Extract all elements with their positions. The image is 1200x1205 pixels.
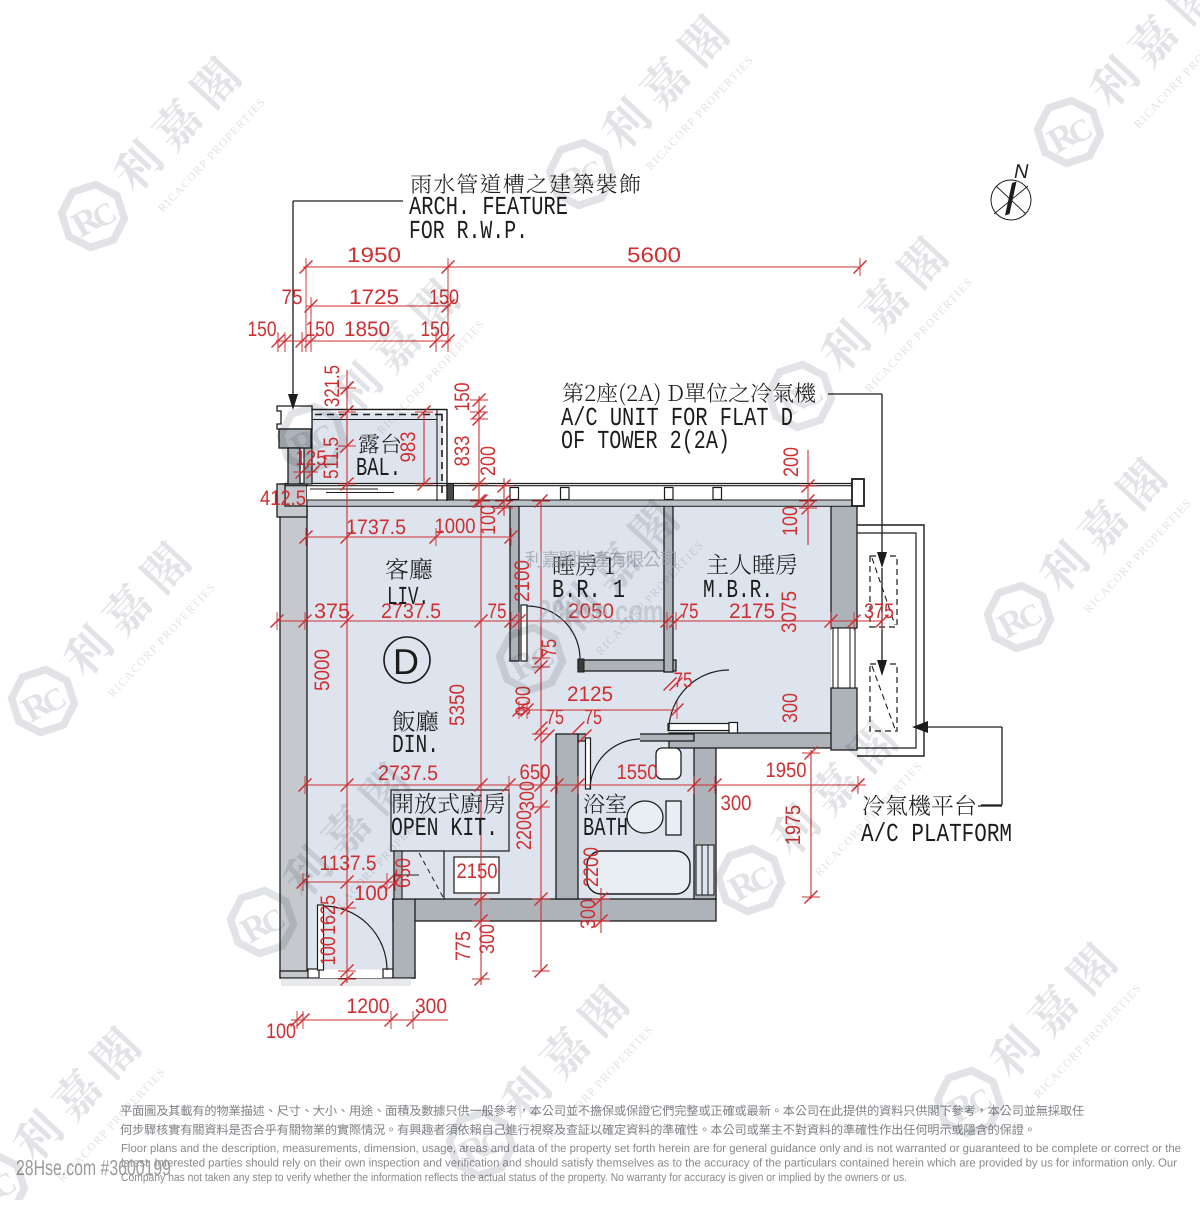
svg-text:300: 300 [779, 693, 802, 723]
svg-text:1737.5: 1737.5 [346, 516, 406, 539]
svg-text:150: 150 [451, 383, 474, 412]
svg-text:650: 650 [520, 761, 551, 784]
svg-text:LIV.: LIV. [387, 582, 429, 612]
svg-text:FOR R.W.P.: FOR R.W.P. [409, 216, 528, 246]
svg-text:DIN.: DIN. [392, 730, 439, 760]
svg-text:75: 75 [282, 286, 303, 309]
svg-text:D: D [393, 641, 419, 682]
svg-text:75: 75 [674, 669, 693, 692]
svg-text:M.B.R.: M.B.R. [703, 575, 773, 605]
svg-text:375: 375 [864, 600, 894, 623]
svg-text:2200: 2200 [513, 810, 536, 850]
svg-text:BATH: BATH [583, 813, 628, 843]
svg-text:BAL.: BAL. [356, 453, 401, 483]
svg-text:1000: 1000 [435, 515, 476, 538]
svg-text:775: 775 [452, 931, 475, 961]
svg-text:A/C PLATFORM: A/C PLATFORM [861, 819, 1012, 849]
svg-text:5000: 5000 [311, 649, 334, 691]
svg-text:75: 75 [488, 600, 507, 623]
svg-text:5350: 5350 [446, 684, 469, 726]
svg-text:3075: 3075 [778, 591, 801, 633]
svg-text:100: 100 [779, 506, 802, 536]
svg-text:150: 150 [306, 318, 335, 341]
svg-text:2150: 2150 [457, 860, 498, 883]
svg-text:OF TOWER 2(2A): OF TOWER 2(2A) [561, 426, 730, 456]
svg-text:75: 75 [680, 600, 699, 623]
svg-text:75: 75 [546, 706, 564, 729]
svg-text:100: 100 [477, 505, 500, 535]
svg-text:1550: 1550 [617, 761, 658, 784]
svg-text:2200: 2200 [580, 847, 603, 887]
svg-text:300: 300 [476, 924, 499, 954]
svg-text:100: 100 [266, 1020, 296, 1043]
svg-text:N: N [1014, 161, 1029, 183]
svg-text:latest. Interested parties sho: latest. Interested parties should rely o… [121, 1157, 1177, 1170]
svg-text:412.5: 412.5 [260, 487, 306, 510]
svg-text:100: 100 [317, 937, 340, 966]
svg-text:1725: 1725 [349, 286, 399, 309]
svg-text:650: 650 [392, 858, 415, 888]
svg-text:300: 300 [577, 899, 600, 929]
svg-text:5600: 5600 [627, 244, 681, 267]
svg-text:1950: 1950 [347, 244, 401, 267]
svg-text:150: 150 [248, 318, 277, 341]
svg-text:Floor plans and the descriptio: Floor plans and the description, measure… [121, 1142, 1181, 1155]
svg-text:Company has not taken any step: Company has not taken any step to verify… [121, 1171, 907, 1184]
svg-text:1950: 1950 [766, 759, 807, 782]
svg-text:300: 300 [415, 995, 447, 1018]
svg-text:200: 200 [780, 447, 803, 477]
svg-text:833: 833 [451, 436, 474, 467]
svg-text:28Hse.com #3600199: 28Hse.com #3600199 [16, 1156, 171, 1180]
svg-text:300: 300 [721, 792, 752, 815]
svg-text:1200: 1200 [347, 995, 390, 1018]
svg-text:375: 375 [314, 600, 350, 623]
svg-text:2125: 2125 [567, 683, 613, 706]
svg-text:75: 75 [584, 706, 602, 729]
svg-text:200: 200 [477, 446, 500, 476]
svg-text:300: 300 [516, 781, 539, 811]
